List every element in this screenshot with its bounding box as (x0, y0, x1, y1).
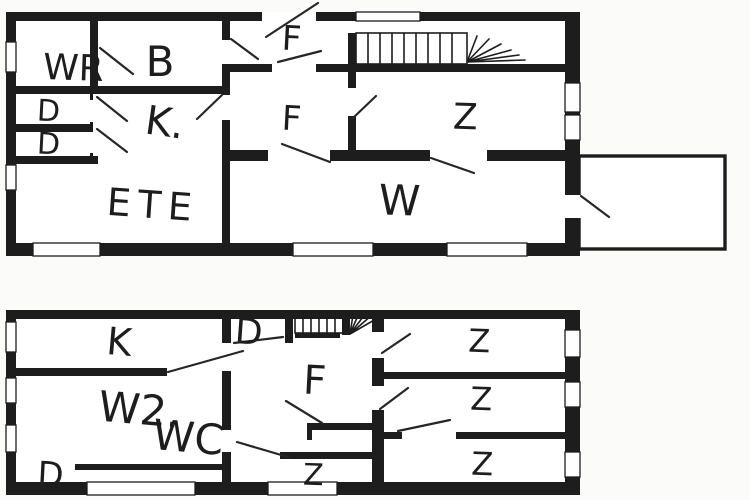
lower-floor-plan: K W2. WC D D F Z Z Z Z (6, 310, 580, 496)
room-label-z: Z (452, 97, 478, 139)
room-label-d-lower: D (36, 126, 61, 162)
window (6, 425, 16, 452)
room-label-wr: WR (42, 47, 104, 90)
upper-floor-plan: WR B F F K. Z W ETE D D (6, 3, 725, 256)
room-label-f-entry: F (281, 19, 303, 60)
annex-room-outline (579, 156, 725, 249)
window (87, 482, 195, 495)
room-label-d-upper: D (36, 93, 61, 129)
room-label-z3: Z (471, 445, 494, 484)
floorplan-drawing: WR B F F K. Z W ETE D D (0, 0, 750, 500)
window (6, 378, 16, 403)
room-label-f-hall: F (281, 99, 303, 140)
window (6, 322, 16, 352)
window (6, 165, 16, 190)
room-label-d-mid: D (234, 311, 265, 354)
window (565, 452, 580, 477)
window (565, 83, 580, 112)
room-label-wc: WC (151, 410, 226, 465)
stair-base-wall (295, 333, 340, 338)
room-label-z-mid: Z (302, 458, 324, 494)
floorplan-canvas: WR B F F K. Z W ETE D D (0, 0, 750, 500)
room-label-f: F (302, 357, 327, 404)
window (565, 330, 580, 357)
window (6, 42, 16, 72)
window (33, 243, 100, 256)
room-label-z1: Z (468, 322, 491, 361)
window (356, 12, 420, 21)
room-label-z2: Z (470, 380, 493, 419)
window (447, 243, 527, 256)
window (565, 115, 580, 140)
room-label-ete: ETE (105, 180, 200, 230)
room-label-w: W (378, 175, 421, 225)
door-opening (564, 195, 581, 218)
room-label-k: K (105, 319, 135, 365)
room-label-b: B (146, 37, 175, 86)
window (565, 382, 580, 407)
room-label-k: K. (142, 98, 187, 149)
room-label-d-left: D (36, 454, 64, 495)
window (293, 243, 373, 256)
